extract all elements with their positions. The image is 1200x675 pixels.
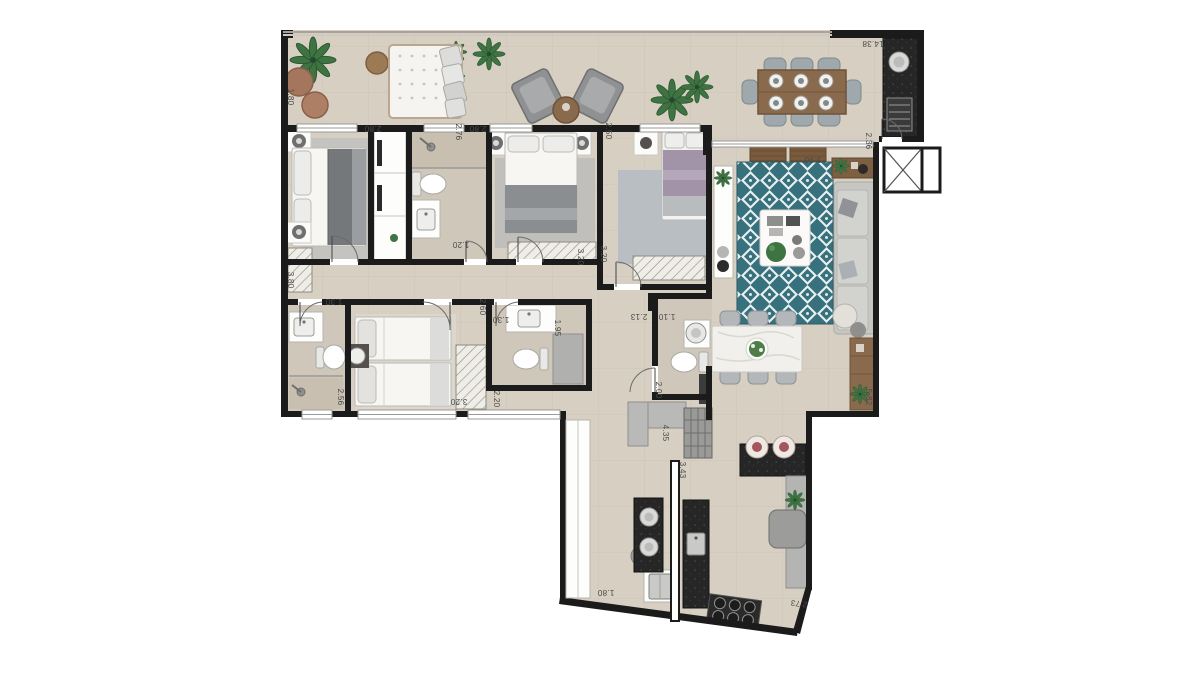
dining-chair-icon bbox=[776, 311, 796, 326]
window bbox=[566, 420, 590, 598]
dim-label: 3.80 bbox=[286, 272, 295, 289]
dim-label: 1.80 bbox=[286, 89, 295, 106]
sink-icon bbox=[506, 305, 556, 332]
dining-area bbox=[712, 311, 802, 384]
plant-icon bbox=[714, 169, 732, 187]
fridge-icon bbox=[769, 510, 806, 548]
dim-label: 3.20 bbox=[599, 246, 608, 263]
coffee-table-icon bbox=[760, 210, 810, 266]
window bbox=[358, 410, 456, 419]
lamp-icon bbox=[292, 134, 306, 148]
dim-label: 5.82 bbox=[864, 389, 873, 406]
lamp-icon bbox=[349, 348, 365, 364]
window bbox=[302, 410, 332, 419]
kitchen-divider-wall bbox=[672, 462, 678, 620]
sink-icon bbox=[412, 200, 440, 238]
single-bed-purple-icon bbox=[662, 130, 708, 220]
laundry-counter-icon bbox=[628, 402, 648, 446]
dim-label: 2.00 bbox=[654, 382, 663, 399]
toilet-icon bbox=[513, 348, 548, 370]
dim-label: 3.43 bbox=[678, 462, 687, 479]
window bbox=[640, 124, 700, 132]
closet-icon bbox=[374, 130, 406, 260]
double-bed-icon bbox=[505, 133, 577, 233]
dim-label: 2.76 bbox=[454, 124, 463, 141]
floor-plan-canvas: 1.80 14.38 2.80 2.76 2.80 2.50 3.90 2.36… bbox=[0, 0, 1200, 675]
plant-icon bbox=[766, 242, 786, 262]
window bbox=[297, 124, 357, 132]
lamp-icon bbox=[292, 225, 306, 239]
toilet-icon bbox=[412, 172, 446, 196]
dim-label: 2.60 bbox=[478, 299, 487, 316]
wood-bench-icon bbox=[750, 146, 786, 161]
dim-label: 2.80 bbox=[469, 124, 486, 133]
dim-label: 2.50 bbox=[604, 123, 613, 140]
console-icon bbox=[832, 158, 878, 178]
island-sink-icon bbox=[687, 533, 705, 555]
dining-chair-icon bbox=[748, 311, 768, 326]
palm-plant-icon bbox=[473, 38, 505, 70]
side-table-icon bbox=[366, 52, 388, 74]
lamp-icon bbox=[640, 137, 652, 149]
bowl-icon bbox=[858, 164, 868, 174]
tufted-sofa-icon bbox=[389, 45, 467, 119]
palm-plant-icon bbox=[681, 71, 713, 103]
window bbox=[468, 410, 560, 419]
single-bed-icon bbox=[355, 317, 451, 360]
tv-console-icon bbox=[714, 166, 733, 278]
window bbox=[490, 124, 532, 132]
dim-label: 1.80 bbox=[597, 588, 614, 597]
toilet-icon bbox=[316, 345, 345, 369]
dim-label: 1.95 bbox=[553, 320, 562, 337]
dim-label: 2.36 bbox=[864, 133, 873, 150]
pouf-icon bbox=[302, 92, 328, 118]
dim-label: 3.20 bbox=[450, 397, 467, 406]
dim-label: 1.20 bbox=[452, 240, 469, 249]
side-table-icon bbox=[850, 322, 866, 338]
dim-label: 2.80 bbox=[364, 124, 381, 133]
sink-icon bbox=[289, 312, 323, 342]
wardrobe-icon bbox=[633, 256, 705, 280]
elevator-hall bbox=[884, 148, 940, 192]
plant-icon bbox=[833, 158, 850, 175]
dining-chair-icon bbox=[720, 311, 740, 326]
plant-icon bbox=[390, 234, 398, 242]
shower-area bbox=[412, 130, 486, 168]
dim-label: 3.90 bbox=[804, 155, 821, 164]
dim-label: 1.30 bbox=[325, 297, 342, 306]
dining-table-icon bbox=[712, 326, 802, 372]
sliding-door bbox=[712, 141, 873, 147]
shower-box-icon bbox=[553, 334, 583, 384]
dim-label: 3.20 bbox=[576, 249, 585, 266]
kitchen-island-icon bbox=[683, 500, 709, 608]
dim-label: 2.56 bbox=[336, 389, 345, 406]
single-bed-icon bbox=[355, 363, 451, 406]
dim-label: 1.10 bbox=[658, 312, 675, 321]
plant-icon bbox=[785, 490, 805, 510]
dim-label: 2.13 bbox=[630, 312, 647, 321]
dim-label: 14.38 bbox=[862, 39, 884, 48]
floor-plan-page: 1.80 14.38 2.80 2.76 2.80 2.50 3.90 2.36… bbox=[0, 0, 1200, 675]
shaft-icon bbox=[922, 148, 940, 192]
table-decor-icon bbox=[562, 103, 570, 111]
dim-label: 1.30 bbox=[492, 315, 509, 324]
dim-label: 4.35 bbox=[661, 425, 670, 442]
toilet-icon bbox=[671, 352, 708, 372]
dim-label: 2.20 bbox=[492, 391, 501, 408]
bbq-counter-icon bbox=[883, 38, 919, 138]
